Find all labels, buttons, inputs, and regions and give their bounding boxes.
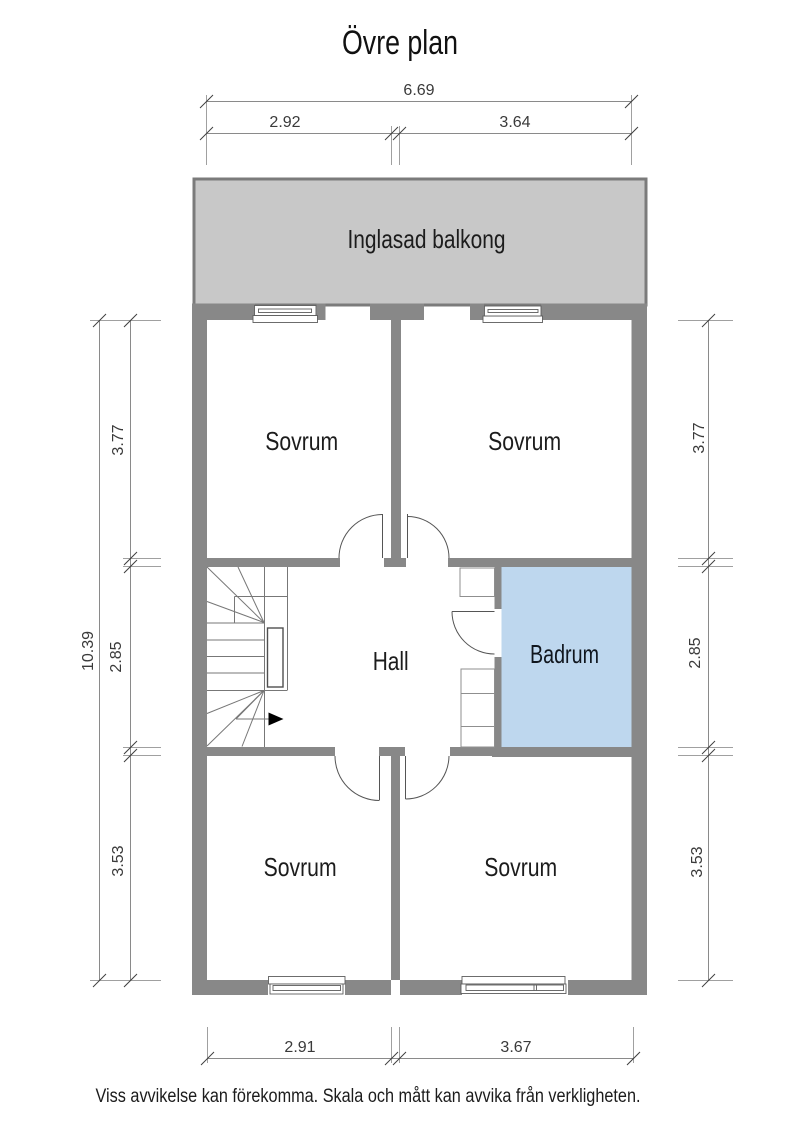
svg-text:Badrum: Badrum bbox=[530, 639, 599, 669]
svg-text:6.69: 6.69 bbox=[403, 82, 434, 99]
svg-text:3.53: 3.53 bbox=[110, 845, 127, 876]
svg-text:2.85: 2.85 bbox=[687, 637, 704, 668]
svg-text:Sovrum: Sovrum bbox=[484, 852, 557, 882]
svg-text:Sovrum: Sovrum bbox=[265, 426, 338, 456]
svg-text:3.53: 3.53 bbox=[689, 846, 706, 877]
svg-text:Sovrum: Sovrum bbox=[488, 426, 561, 456]
svg-text:Hall: Hall bbox=[373, 646, 409, 676]
svg-text:3.67: 3.67 bbox=[500, 1039, 531, 1056]
svg-text:2.92: 2.92 bbox=[269, 114, 300, 131]
svg-text:Sovrum: Sovrum bbox=[264, 852, 337, 882]
svg-text:Inglasad balkong: Inglasad balkong bbox=[348, 224, 506, 254]
svg-text:Viss avvikelse kan förekomma.: Viss avvikelse kan förekomma. Skala och … bbox=[96, 1086, 641, 1107]
svg-text:2.85: 2.85 bbox=[108, 641, 125, 672]
svg-text:3.77: 3.77 bbox=[110, 424, 127, 455]
svg-text:3.64: 3.64 bbox=[499, 114, 530, 131]
svg-text:Övre plan: Övre plan bbox=[342, 24, 458, 62]
svg-text:2.91: 2.91 bbox=[284, 1039, 315, 1056]
svg-text:3.77: 3.77 bbox=[691, 422, 708, 453]
svg-text:10.39: 10.39 bbox=[80, 631, 97, 671]
